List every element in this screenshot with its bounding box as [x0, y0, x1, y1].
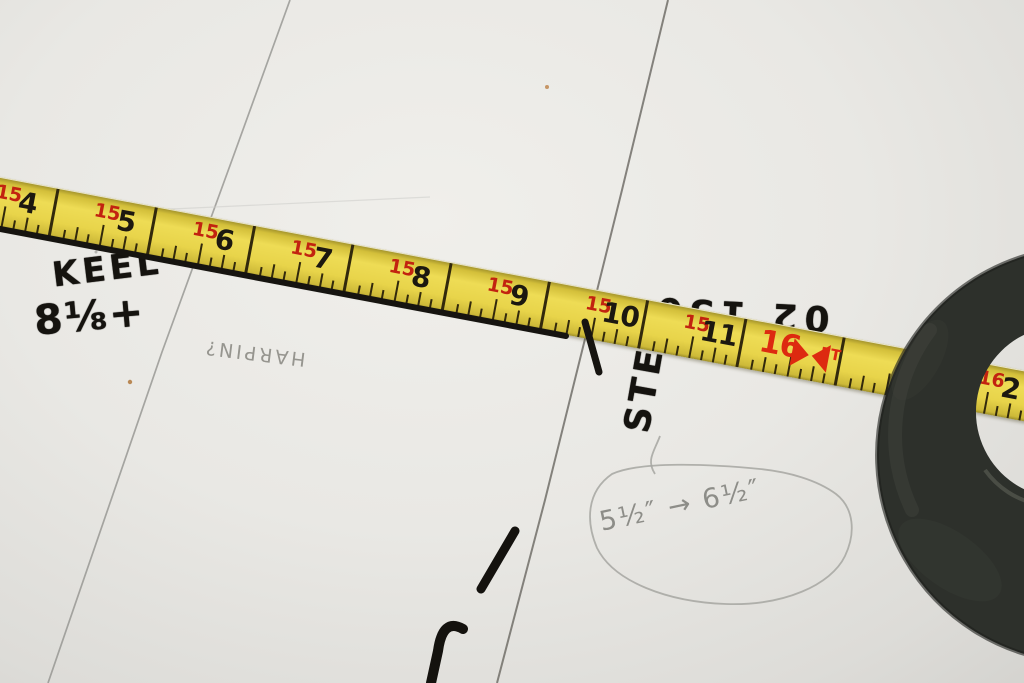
marker-hook-stroke: [431, 626, 463, 683]
marker-end-tick: [585, 322, 599, 372]
marker-stroke: [481, 531, 515, 589]
rubber-ring: [877, 247, 1024, 663]
foreground-objects: [0, 0, 1024, 683]
marker-baseline: [0, 229, 566, 336]
lofting-board-photo: KEEL 8⅛+ STEM 02 150 HARPIN? 5½″ → 6½″ 1…: [0, 0, 1024, 683]
